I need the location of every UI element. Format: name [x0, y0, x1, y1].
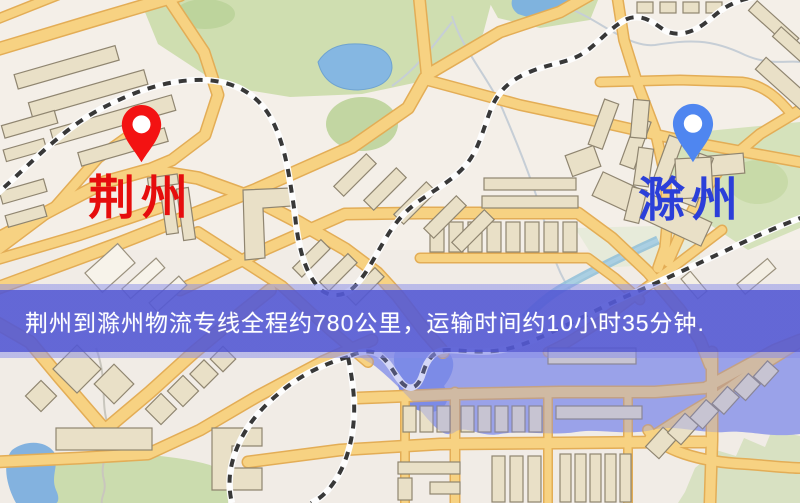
bottom-left-lake: [6, 443, 58, 503]
destination-city-label: 滁州: [638, 178, 744, 225]
map-canvas: [0, 0, 800, 503]
map-screenshot: 荆州到滁州物流专线全程约780公里，运输时间约10小时35分钟. 荆州 滁州: [0, 0, 800, 503]
route-banner: 荆州到滁州物流专线全程约780公里，运输时间约10小时35分钟.: [0, 284, 800, 358]
red-map-pin-icon: [119, 103, 164, 167]
blue-map-pin-icon: [670, 102, 716, 167]
origin-city-label: 荆州: [88, 176, 194, 223]
route-banner-text: 荆州到滁州物流专线全程约780公里，运输时间约10小时35分钟.: [0, 304, 705, 338]
